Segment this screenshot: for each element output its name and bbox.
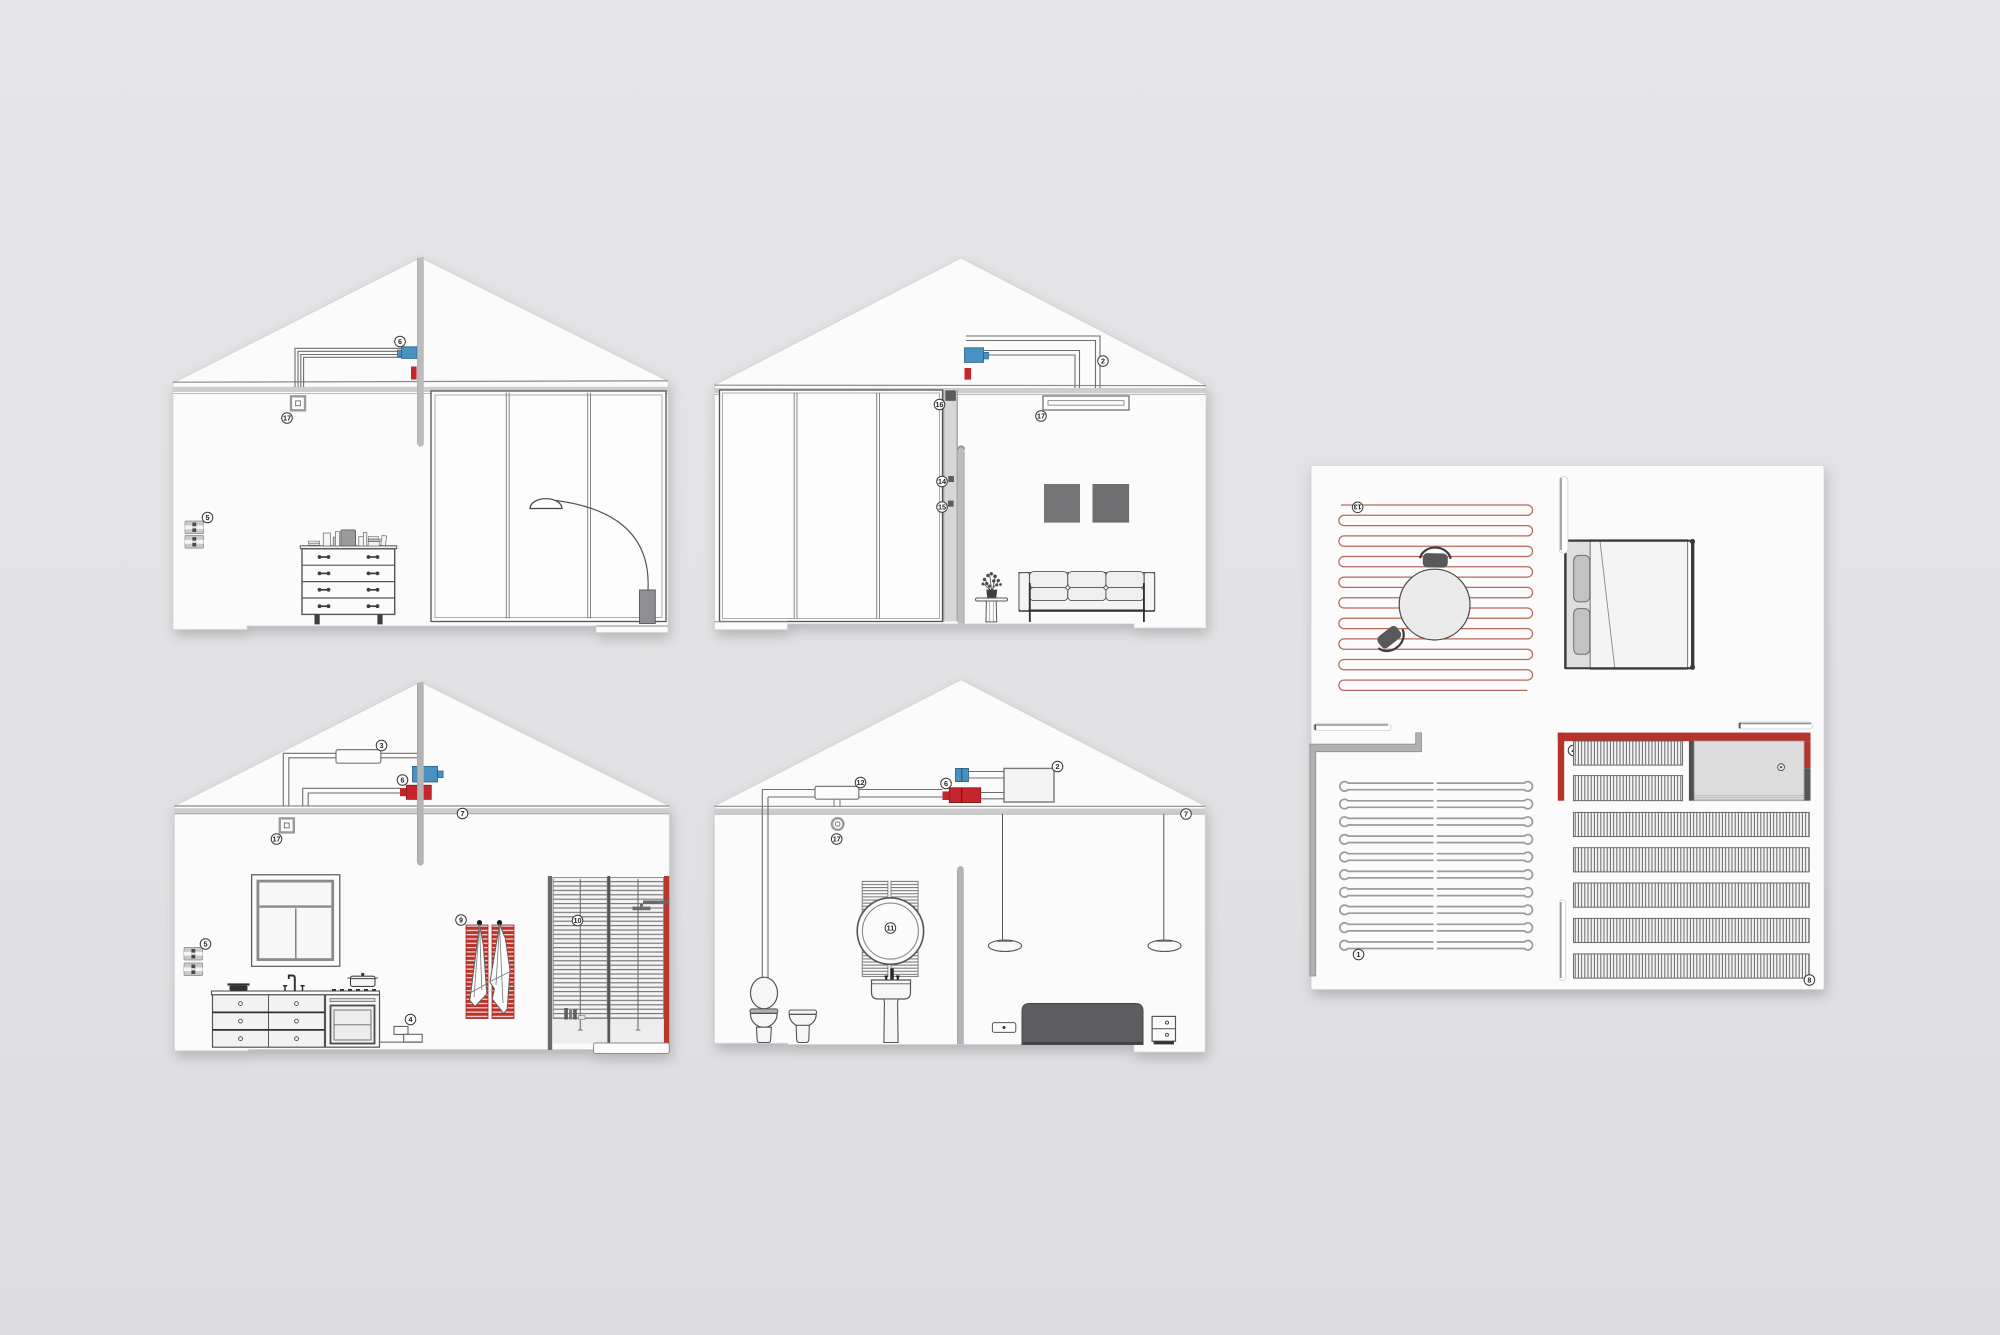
svg-text:8: 8	[1807, 976, 1811, 985]
svg-text:6: 6	[401, 776, 405, 785]
svg-text:15: 15	[938, 503, 946, 512]
svg-text:6: 6	[944, 779, 948, 788]
svg-text:10: 10	[574, 916, 582, 925]
svg-text:3: 3	[380, 741, 384, 750]
svg-text:12: 12	[857, 778, 865, 787]
svg-text:16: 16	[936, 400, 944, 409]
svg-text:5: 5	[204, 940, 208, 949]
svg-text:17: 17	[833, 835, 841, 844]
svg-text:4: 4	[409, 1015, 413, 1024]
svg-text:2: 2	[1056, 762, 1060, 771]
svg-text:5: 5	[206, 513, 210, 522]
svg-text:14: 14	[938, 477, 946, 486]
svg-text:7: 7	[1184, 810, 1188, 819]
svg-text:17: 17	[273, 835, 281, 844]
svg-text:11: 11	[887, 924, 895, 933]
svg-text:13: 13	[1354, 503, 1362, 512]
svg-text:1: 1	[1357, 950, 1361, 959]
svg-text:7: 7	[461, 809, 465, 818]
svg-text:6: 6	[398, 337, 402, 346]
svg-text:17: 17	[283, 414, 291, 423]
svg-text:9: 9	[459, 916, 463, 925]
svg-text:2: 2	[1101, 357, 1105, 366]
svg-text:17: 17	[1037, 412, 1045, 421]
